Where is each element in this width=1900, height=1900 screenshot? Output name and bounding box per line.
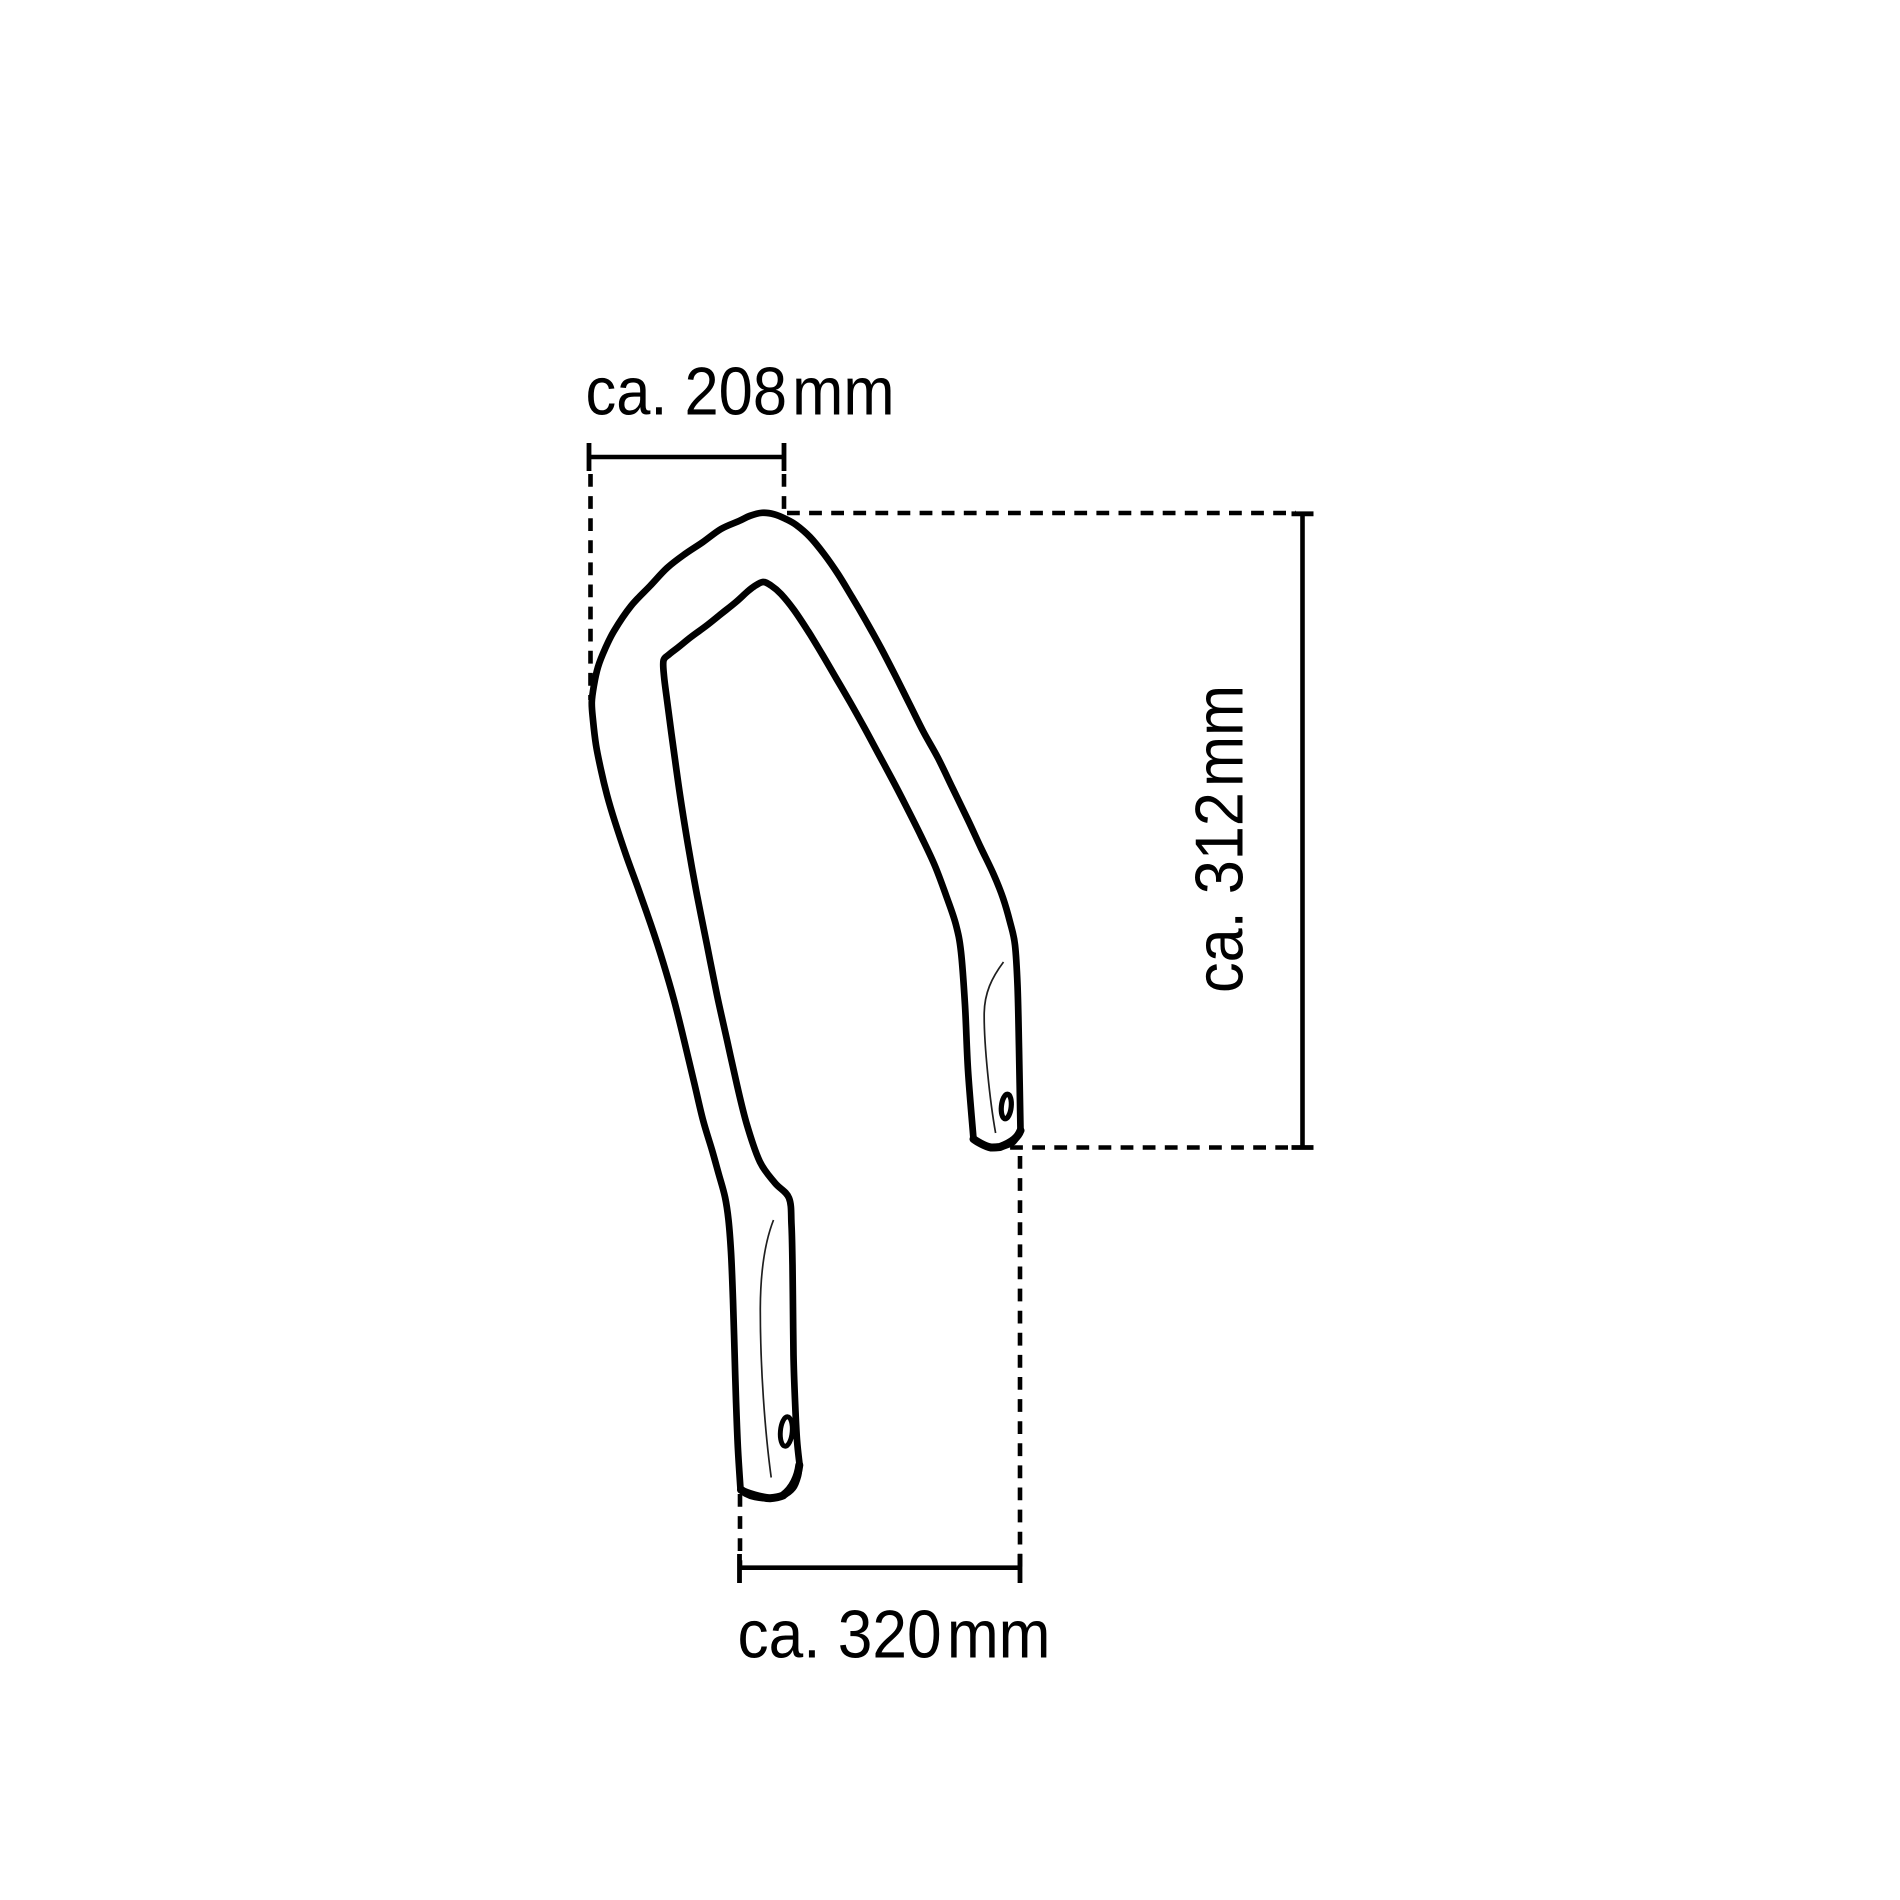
svg-text:ca. 208 mm: ca. 208 mm xyxy=(586,354,895,430)
svg-text:ca. 312 mm: ca. 312 mm xyxy=(1182,685,1258,993)
svg-text:ca. 320 mm: ca. 320 mm xyxy=(738,1597,1051,1673)
